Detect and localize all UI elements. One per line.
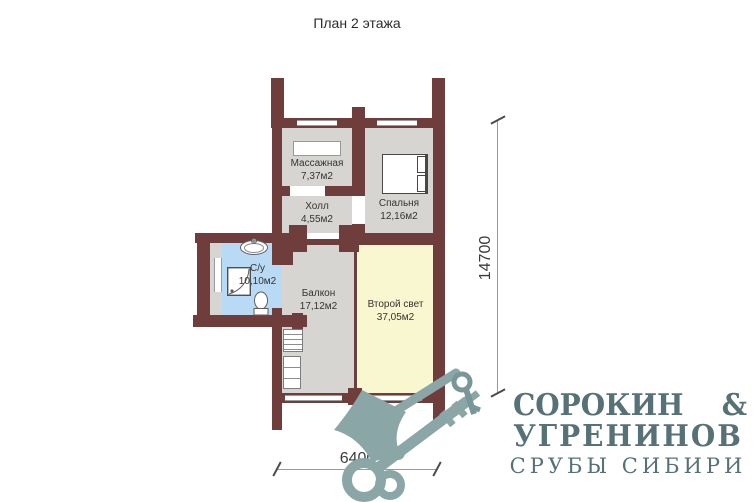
bed-pillow xyxy=(417,156,426,173)
room-name: Массажная xyxy=(282,157,352,170)
dimension-tick xyxy=(490,115,505,124)
wall xyxy=(339,233,445,245)
room-label-bedroom: Спальня 12,16м2 xyxy=(365,197,433,223)
window xyxy=(377,120,417,126)
room-area: 4,55м2 xyxy=(282,213,352,226)
logo-name-1: СОРОКИН xyxy=(513,390,684,420)
logo-line-2: УГРЕНИНОВ xyxy=(506,421,750,451)
wall xyxy=(272,128,282,238)
room-area: 12,16м2 xyxy=(365,210,433,223)
room-label-massage: Массажная 7,37м2 xyxy=(282,157,352,183)
room-name: Спальня xyxy=(365,197,433,210)
stairs xyxy=(283,329,303,352)
room-label-balcony: Балкон 17,12м2 xyxy=(282,287,355,313)
room-name: С/у xyxy=(222,262,293,275)
axe-and-key-watermark-icon xyxy=(266,356,530,502)
page-title: План 2 этажа xyxy=(257,15,457,31)
bathroom-window xyxy=(214,258,222,292)
room-label-bathroom: С/у 10,10м2 xyxy=(222,262,293,288)
room-name: Второй свет xyxy=(358,298,433,311)
room-label-hall: Холл 4,55м2 xyxy=(282,200,352,226)
bed-pillow xyxy=(417,175,426,192)
toilet-icon xyxy=(252,291,270,316)
wall xyxy=(282,186,290,196)
room-area: 37,05м2 xyxy=(358,311,433,324)
room-area: 17,12м2 xyxy=(282,300,355,313)
wall xyxy=(272,233,293,265)
room-area: 7,37м2 xyxy=(282,170,352,183)
logo-line-1: СОРОКИН & xyxy=(513,390,747,420)
room-label-second-light: Второй свет 37,05м2 xyxy=(358,298,433,324)
logo-tagline: СРУБЫ СИБИРИ xyxy=(506,456,750,477)
wall xyxy=(307,239,339,245)
dimension-height-label: 14700 xyxy=(477,228,495,288)
wall xyxy=(325,186,352,196)
room-name: Балкон xyxy=(282,287,355,300)
room-name: Холл xyxy=(282,200,352,213)
wall xyxy=(352,118,365,196)
wall xyxy=(193,315,307,327)
massage-table xyxy=(293,141,341,156)
sink-icon xyxy=(239,238,269,255)
window xyxy=(297,120,337,126)
logo-ampersand: & xyxy=(722,390,747,420)
floor-plan-page: План 2 этажа xyxy=(0,0,753,502)
dimension-line-vertical xyxy=(497,121,498,394)
wall xyxy=(197,243,210,315)
